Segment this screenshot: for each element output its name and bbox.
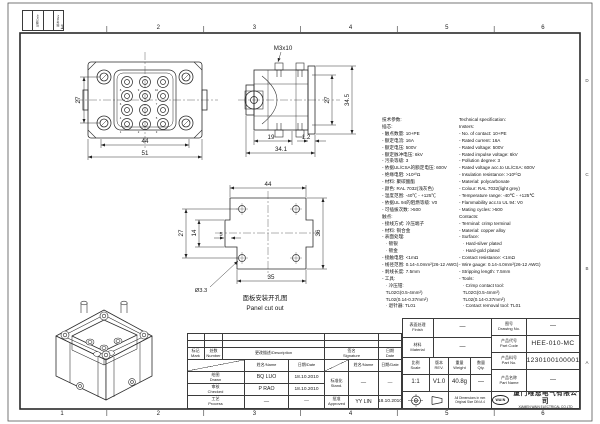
weight-label: 重量 Weight (449, 358, 471, 375)
part-no-value: 1230100100001 (527, 353, 580, 370)
svg-text:Ø3.3: Ø3.3 (195, 288, 208, 294)
diagonal-cell (325, 360, 349, 372)
front-view: 8 9 10 6 7 4 5 1 2 3 27 44 51 (75, 52, 218, 160)
svg-text:10: 10 (155, 88, 159, 92)
svg-text:M3x10: M3x10 (274, 45, 293, 52)
part-code-label: 产品代号 Part Code (492, 336, 527, 353)
scale-value: 1:1 (402, 375, 430, 392)
list-item: - Colour: RAL 7032(light grey) (459, 186, 541, 193)
svg-text:1: 1 (120, 130, 122, 134)
svg-text:面板安装开孔图: 面板安装开孔图 (243, 293, 288, 302)
svg-text:4: 4 (120, 116, 122, 120)
list-item: Contacts: (459, 214, 541, 221)
list-item: - 额定电流: 16A (382, 138, 458, 145)
company-name-zh: 厦门唯恩电气有限公司 (512, 392, 579, 405)
rev-cell (205, 341, 223, 349)
rev-cell (205, 333, 223, 341)
drawn-label: 绘图 Drawn (187, 372, 245, 384)
drawing-sheet: 123456 123456 DCBA 日期/Date 版本/Rev (0, 0, 600, 424)
svg-text:14: 14 (191, 229, 198, 236)
standardization-label: 标准化 Stand. (325, 372, 349, 396)
date-header: 日期 Date (379, 348, 402, 360)
list-item: - Flammability acc.to UL 94: V0 (459, 200, 541, 207)
list-item: - 接触电阻: <1mΩ (382, 255, 458, 262)
side-dimensions: M3x10 27 34.5 19 1.2 34.1 (246, 45, 356, 157)
spec-text-zh: 技术参数:插芯:- 触点数量: 10+PE- 额定电流: 16A- 额定电压: … (382, 117, 458, 310)
list-item: - Tools: (459, 276, 541, 283)
list-item: - Rated current: 16A (459, 138, 541, 145)
checked-label: 审核 Checked (187, 384, 245, 396)
svg-text:44: 44 (265, 181, 272, 188)
svg-text:34.1: 34.1 (275, 146, 288, 153)
list-item: - Mating cycles: >500 (459, 207, 541, 214)
list-item: - 温度范围: -40℃ - +125℃ (382, 193, 458, 200)
rev-cell (223, 333, 325, 341)
rev-cell (223, 341, 325, 349)
svg-text:5: 5 (219, 232, 222, 238)
list-item: - 依据UL 94的阻燃等级: V0 (382, 200, 458, 207)
date-subheader: 日期/Date (379, 360, 402, 372)
list-item: - Rated voltage: 500V (459, 145, 541, 152)
list-item: - 接线方式: 冷压端子 (382, 221, 458, 228)
approved-name: YY LIN (349, 396, 379, 409)
finish-value: — (434, 318, 492, 338)
process-date: — (289, 396, 325, 409)
qty-label: 数量 Qty. (471, 358, 492, 375)
drawn-name: BQ LUO (245, 372, 289, 384)
rev-label: 版本 REV. (430, 358, 449, 375)
part-name-value: — (527, 370, 580, 392)
list-item: - 剥线长度: 7.5mm (382, 269, 458, 276)
list-item: - Rated voltage acc.to UL/CSA: 600V (459, 165, 541, 172)
cutout-holes (236, 203, 302, 264)
svg-text:35: 35 (268, 274, 275, 281)
drawn-date: 18.10.2010 (289, 372, 325, 384)
spec-text-en: Technical specification:Insters:- No. of… (459, 117, 541, 310)
svg-text:19: 19 (268, 134, 275, 141)
svg-text:34.5: 34.5 (344, 93, 351, 106)
list-item: · 退针器: TL01 (382, 303, 458, 310)
svg-text:2: 2 (138, 130, 140, 134)
list-item: - 线径范围: 0.14-4.0mm²(26-12 AWG) (382, 262, 458, 269)
process-label: 工艺 Process (187, 396, 245, 409)
list-item: - Material: copper alloy (459, 228, 541, 235)
list-item: - Contact resistance: <1mΩ (459, 255, 541, 262)
svg-text:7: 7 (156, 102, 158, 106)
qty-value: — (471, 375, 492, 392)
list-item: 触点: (382, 214, 458, 221)
svg-text:5: 5 (156, 116, 158, 120)
signature-header: 签名 Signature (325, 348, 379, 360)
svg-text:8: 8 (120, 88, 122, 92)
list-item: Technical specification: (459, 117, 541, 124)
rev-cell (187, 333, 205, 341)
dimensions-note: All Dimensions in mm Original Size DIN A… (449, 392, 492, 409)
list-item: · 冷压钳: (382, 283, 458, 290)
list-item: · Hard-silver plated (459, 241, 541, 248)
svg-text:Panel cut out: Panel cut out (246, 305, 284, 312)
finish-label: 表面处理 Finish (402, 318, 434, 338)
panel-cutout-view: 44 35 36 27 14 5 Ø3.3 面板安装开孔图 (178, 181, 327, 312)
list-item: - Insulation resistance: >10¹⁰Ω (459, 172, 541, 179)
svg-text:27: 27 (178, 229, 185, 236)
list-item: · Crimp contact tool: (459, 283, 541, 290)
cutout-caption: 面板安装开孔图 Panel cut out (243, 293, 288, 312)
svg-text:6: 6 (120, 102, 122, 106)
list-item: - Stripping length: 7.5mm (459, 269, 541, 276)
rev-cell (325, 341, 379, 349)
projection-symbol (402, 392, 449, 409)
checked-date: 18.10.2010 (289, 384, 325, 396)
approved-date: 18.10.2010 (379, 396, 402, 409)
part-name-label: 产品名称 Part Name (492, 370, 527, 392)
list-item: - 可插拔次数: >500 (382, 207, 458, 214)
drawing-no-value: — (527, 318, 580, 336)
mark-header: 标记 Mark (187, 348, 205, 360)
isometric-view (56, 301, 152, 400)
material-value: — (434, 338, 492, 358)
svg-text:51: 51 (142, 150, 149, 157)
svg-text:9: 9 (138, 88, 140, 92)
standardization-name: — (349, 372, 379, 396)
approved-label: 批准 Approved (325, 396, 349, 409)
svg-text:3: 3 (156, 130, 158, 134)
part-code-value: HEE-010-MC (527, 336, 580, 353)
weight-value: 40.8g (449, 375, 471, 392)
wain-logo: WAIN (492, 395, 509, 405)
list-item: - Surface: (459, 234, 541, 241)
checked-name: P RAO (245, 384, 289, 396)
list-item: 插芯: (382, 124, 458, 131)
svg-text:27: 27 (324, 96, 331, 103)
number-header: 处数 Number (205, 348, 223, 360)
svg-text:1.2: 1.2 (302, 134, 311, 141)
list-item: - No. of contact: 10+PE (459, 131, 541, 138)
standardization-date: — (379, 372, 402, 396)
diagonal-cell (187, 360, 245, 372)
rev-cell (187, 341, 205, 349)
part-no-label: 产品料号 Part No. (492, 353, 527, 370)
list-item: TL02(0.14-0.37mm²) (459, 297, 541, 304)
list-item: - 工具: (382, 276, 458, 283)
first-angle-projection-icon (403, 393, 448, 408)
list-item: · Hard-gold plated (459, 248, 541, 255)
name-subheader: 姓名/Name (349, 360, 379, 372)
list-item: - Wire gauge: 0.14-4.0mm²(26-12 AWG) (459, 262, 541, 269)
date-subheader: 日期/Date (289, 360, 325, 372)
list-item: 技术参数: (382, 117, 458, 124)
list-item: - 触点数量: 10+PE (382, 131, 458, 138)
list-item: - Rated impulse voltage: 6kV (459, 152, 541, 159)
list-item: - Pollution degree: 3 (459, 158, 541, 165)
list-item: - Terminal: crimp terminal (459, 221, 541, 228)
list-item: Insters: (459, 124, 541, 131)
list-item: - Material: polycarbonate (459, 179, 541, 186)
company-block: WAIN 厦门唯恩电气有限公司 XIAMEN WAIN ELECTRICAL C… (492, 392, 580, 409)
scale-label: 比例 Scale (402, 358, 430, 375)
material-label: 材料 Material (402, 338, 434, 358)
process-name: — (245, 396, 289, 409)
list-item: - 颜色: RAL 7032(浅灰色) (382, 186, 458, 193)
description-header: 更改描述/Description (223, 348, 325, 360)
drawing-no-label: 图号 Drawing No. (492, 318, 527, 336)
list-item: · Contact removal tool: TL01 (459, 303, 541, 310)
list-item: - Temperature range: -40℃ - +125℃ (459, 193, 541, 200)
name-subheader: 姓名/Name (245, 360, 289, 372)
rev-cell (325, 333, 379, 341)
rev-cell (379, 341, 402, 349)
svg-text:44: 44 (142, 138, 149, 145)
svg-text:27: 27 (75, 96, 82, 103)
list-item: TL02G(0.5-4mm²) (382, 290, 458, 297)
rev-value: V1.0 (430, 375, 449, 392)
svg-text:36: 36 (315, 229, 322, 236)
list-item: - 额定电压: 500V (382, 145, 458, 152)
rev-cell (379, 333, 402, 341)
company-name-en: XIAMEN WAIN ELECTRICAL CO.LTD (518, 406, 572, 409)
list-item: TL02G(0.5-4mm²) (459, 290, 541, 297)
front-contacts (122, 77, 169, 130)
side-view: M3x10 27 34.5 19 1.2 34.1 (238, 45, 356, 157)
